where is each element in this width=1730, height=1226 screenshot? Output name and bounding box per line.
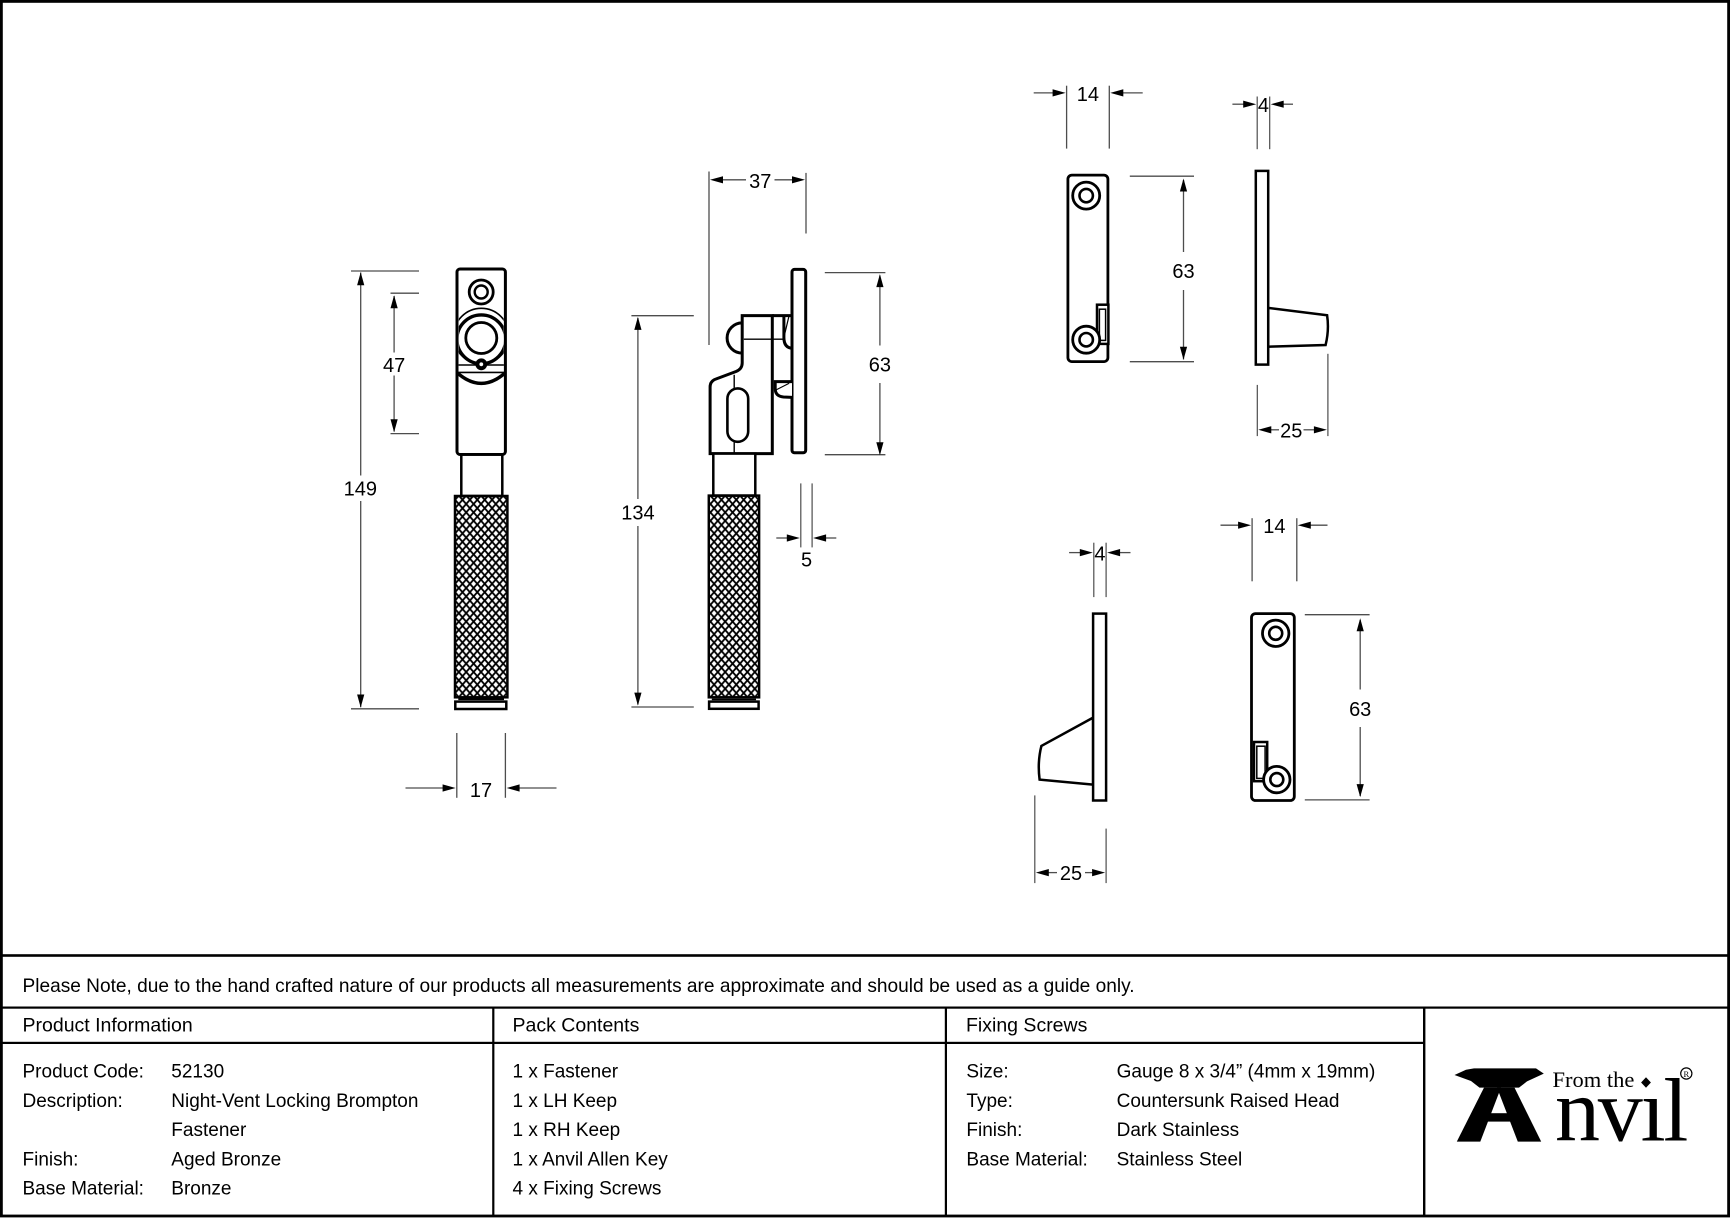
svg-text:14: 14 bbox=[1263, 516, 1285, 538]
svg-text:R: R bbox=[1683, 1069, 1689, 1079]
svg-text:25: 25 bbox=[1280, 420, 1302, 442]
svg-text:Gauge 8 x 3/4” (4mm x 19mm): Gauge 8 x 3/4” (4mm x 19mm) bbox=[1117, 1062, 1376, 1083]
svg-text:37: 37 bbox=[749, 171, 771, 193]
svg-text:4: 4 bbox=[1094, 544, 1105, 566]
svg-text:17: 17 bbox=[470, 780, 492, 802]
svg-text:Product Code:: Product Code: bbox=[23, 1062, 144, 1083]
svg-text:63: 63 bbox=[1349, 699, 1371, 721]
svg-text:134: 134 bbox=[621, 503, 654, 525]
svg-text:Type:: Type: bbox=[966, 1091, 1012, 1112]
svg-text:4: 4 bbox=[1258, 95, 1269, 117]
svg-text:149: 149 bbox=[344, 479, 377, 501]
svg-text:Countersunk Raised Head: Countersunk Raised Head bbox=[1117, 1091, 1340, 1112]
svg-text:4 x Fixing Screws: 4 x Fixing Screws bbox=[513, 1179, 662, 1200]
svg-text:nvıl: nvıl bbox=[1555, 1062, 1687, 1161]
svg-text:Aged Bronze: Aged Bronze bbox=[171, 1149, 281, 1170]
svg-text:1 x Fastener: 1 x Fastener bbox=[513, 1062, 619, 1083]
svg-text:Finish:: Finish: bbox=[23, 1149, 79, 1170]
svg-text:14: 14 bbox=[1077, 84, 1099, 106]
svg-text:Product Information: Product Information bbox=[23, 1015, 193, 1037]
svg-text:25: 25 bbox=[1060, 863, 1082, 885]
svg-text:5: 5 bbox=[801, 550, 812, 572]
svg-text:Pack Contents: Pack Contents bbox=[513, 1015, 640, 1037]
svg-text:Dark Stainless: Dark Stainless bbox=[1117, 1120, 1240, 1141]
svg-text:Finish:: Finish: bbox=[966, 1120, 1022, 1141]
svg-text:1 x Anvil Allen Key: 1 x Anvil Allen Key bbox=[513, 1149, 669, 1170]
svg-text:Base Material:: Base Material: bbox=[966, 1149, 1087, 1170]
svg-text:52130: 52130 bbox=[171, 1062, 224, 1083]
svg-text:Fastener: Fastener bbox=[171, 1120, 247, 1141]
svg-text:Please Note, due to the hand c: Please Note, due to the hand crafted nat… bbox=[23, 976, 1135, 997]
svg-text:1 x RH Keep: 1 x RH Keep bbox=[513, 1120, 621, 1141]
svg-text:63: 63 bbox=[869, 355, 891, 377]
svg-text:Night-Vent Locking Brompton: Night-Vent Locking Brompton bbox=[171, 1091, 418, 1112]
svg-text:Fixing Screws: Fixing Screws bbox=[966, 1015, 1088, 1037]
svg-text:63: 63 bbox=[1172, 261, 1194, 283]
svg-text:Description:: Description: bbox=[23, 1091, 123, 1112]
svg-text:Base Material:: Base Material: bbox=[23, 1179, 144, 1200]
svg-text:Size:: Size: bbox=[966, 1062, 1008, 1083]
svg-text:47: 47 bbox=[383, 355, 405, 377]
svg-text:Bronze: Bronze bbox=[171, 1179, 231, 1200]
svg-text:Stainless Steel: Stainless Steel bbox=[1117, 1149, 1243, 1170]
svg-text:1 x LH Keep: 1 x LH Keep bbox=[513, 1091, 618, 1112]
